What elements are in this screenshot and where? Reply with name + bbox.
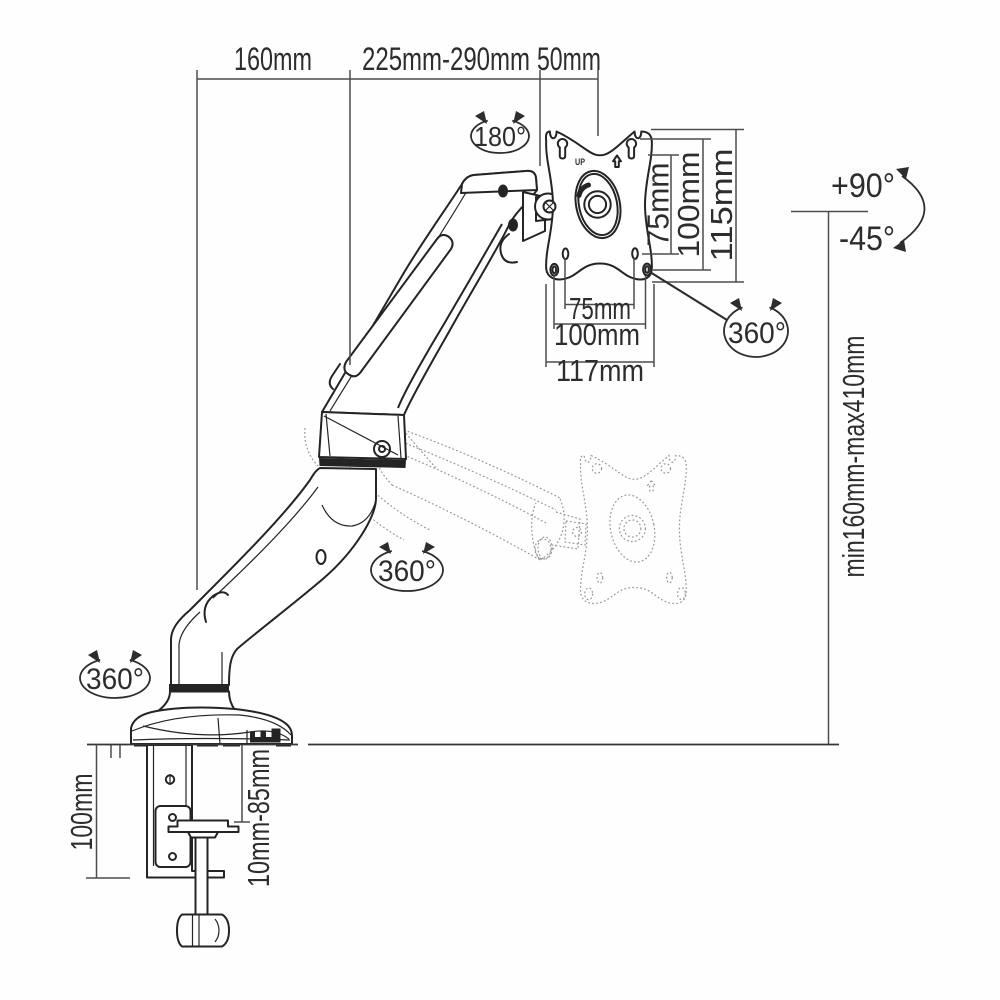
- svg-text:UP: UP: [575, 157, 585, 168]
- svg-text:360°: 360°: [86, 663, 144, 696]
- svg-text:117mm: 117mm: [556, 353, 644, 388]
- svg-text:50mm: 50mm: [537, 41, 601, 77]
- svg-text:100mm: 100mm: [554, 317, 640, 352]
- svg-text:min160mm-max410mm: min160mm-max410mm: [836, 336, 871, 578]
- svg-text:360°: 360°: [728, 317, 786, 350]
- svg-text:10mm-85mm: 10mm-85mm: [241, 749, 276, 887]
- svg-text:160mm: 160mm: [234, 41, 312, 77]
- svg-text:-45°: -45°: [839, 220, 895, 258]
- svg-text:180°: 180°: [474, 121, 526, 152]
- svg-text:225mm-290mm: 225mm-290mm: [362, 41, 530, 77]
- svg-text:360°: 360°: [378, 555, 436, 588]
- svg-text:115mm: 115mm: [704, 149, 739, 262]
- svg-text:+90°: +90°: [831, 167, 895, 205]
- svg-text:100mm: 100mm: [64, 774, 99, 851]
- svg-text:100mm: 100mm: [671, 152, 706, 258]
